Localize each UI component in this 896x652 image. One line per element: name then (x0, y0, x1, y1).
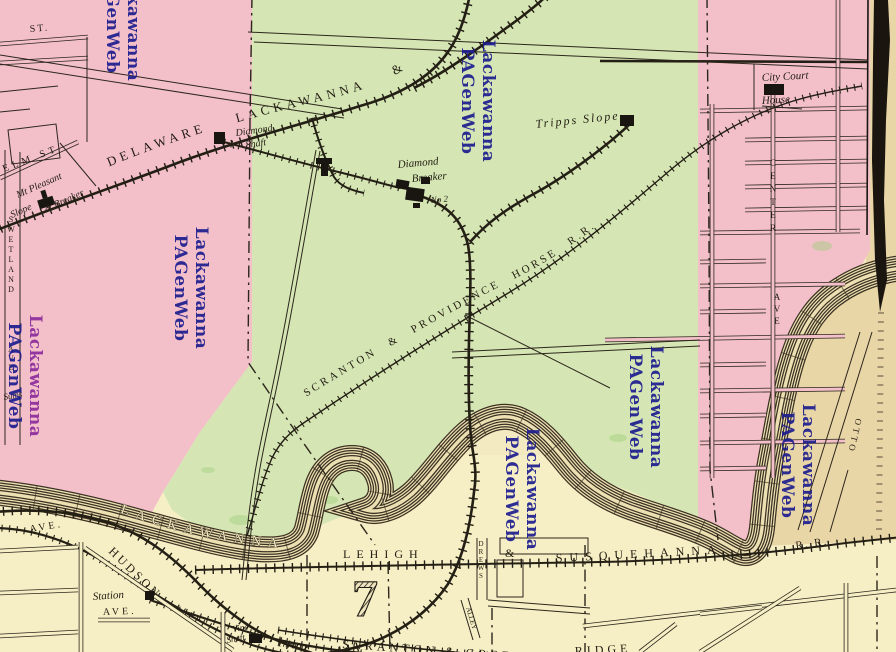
svg-text:PAGenWeb: PAGenWeb (4, 323, 24, 430)
label-city-court-house: House (761, 94, 791, 108)
svg-text:Lackawanna: Lackawanna (191, 227, 211, 350)
watermark-top-center: Lackawanna PAGenWeb (457, 40, 498, 163)
junction-building-symbol (316, 158, 332, 164)
svg-text:Lackawanna: Lackawanna (646, 346, 666, 469)
watermark-left-edge: Lackawanna PAGenWeb (4, 315, 45, 438)
svg-text:Lackawanna: Lackawanna (123, 0, 143, 81)
svg-text:PAGenWeb: PAGenWeb (501, 436, 521, 543)
watermark-right-edge: Lackawanna PAGenWeb (777, 404, 818, 527)
watermark-center-left: Lackawanna PAGenWeb (170, 227, 211, 350)
svg-text:Lackawanna: Lackawanna (478, 40, 498, 163)
label-city-court: City Court (762, 70, 810, 84)
label-ridge: RIDGE (574, 641, 631, 652)
svg-text:PAGenWeb: PAGenWeb (170, 235, 190, 342)
label-center-ave: AVE (774, 292, 781, 326)
svg-text:PAGenWeb: PAGenWeb (102, 0, 122, 73)
svg-text:PAGenWeb: PAGenWeb (457, 48, 477, 155)
historic-map: ST. ELM ST Mt Pleasant Slope & Breaker S… (0, 0, 896, 652)
label-ave-2: AVE. (103, 606, 137, 618)
svg-text:PAGenWeb: PAGenWeb (625, 354, 645, 461)
label-ward-7: 7 (352, 571, 378, 628)
label-st: ST. (29, 22, 49, 35)
label-lehigh: LEHIGH (343, 547, 424, 561)
tripps-slope-symbol (620, 115, 634, 126)
svg-text:Lackawanna: Lackawanna (25, 315, 45, 438)
label-ampersand: & (505, 546, 515, 560)
diamond-shaft-symbol (214, 132, 225, 144)
svg-text:PAGenWeb: PAGenWeb (777, 412, 797, 519)
svg-text:Lackawanna: Lackawanna (798, 404, 818, 527)
svg-text:Lackawanna: Lackawanna (522, 428, 542, 551)
label-diamond-breaker-no2: No 2 (429, 193, 449, 205)
watermark-top-left: Lackawanna PAGenWeb (102, 0, 143, 81)
vine-shaft-symbol (249, 634, 262, 643)
watermark-bottom-center: Lackawanna PAGenWeb (501, 428, 542, 551)
label-station: Station (92, 589, 124, 603)
map-canvas[interactable]: ST. ELM ST Mt Pleasant Slope & Breaker S… (0, 0, 896, 652)
watermark-center-right: Lackawanna PAGenWeb (625, 346, 666, 469)
